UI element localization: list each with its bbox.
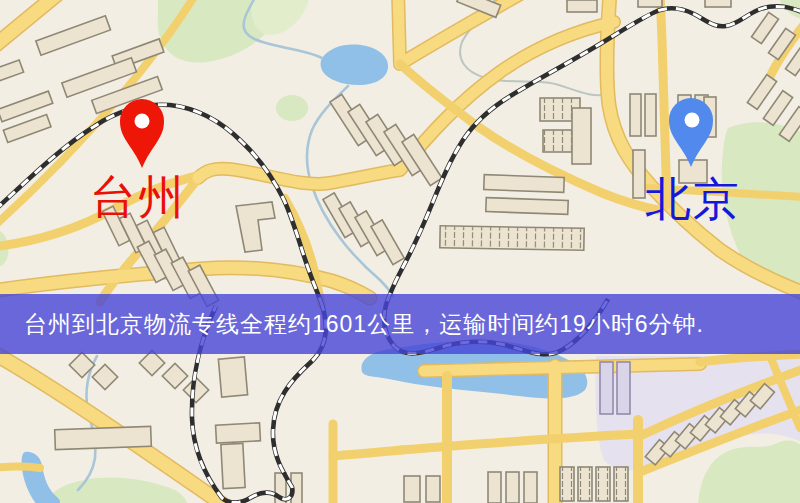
map-canvas[interactable]: 台州 北京 台州到北京物流专线全程约1601公里，运输时间约19小时6分钟. <box>0 0 800 503</box>
destination-city-label: 北京 <box>645 176 741 224</box>
route-info-text: 台州到北京物流专线全程约1601公里，运输时间约19小时6分钟. <box>0 309 704 340</box>
origin-pin-icon[interactable] <box>119 98 165 168</box>
route-info-banner: 台州到北京物流专线全程约1601公里，运输时间约19小时6分钟. <box>0 294 800 354</box>
destination-pin-icon[interactable] <box>668 97 714 167</box>
origin-city-label: 台州 <box>90 174 186 222</box>
map-graphics <box>0 0 800 503</box>
